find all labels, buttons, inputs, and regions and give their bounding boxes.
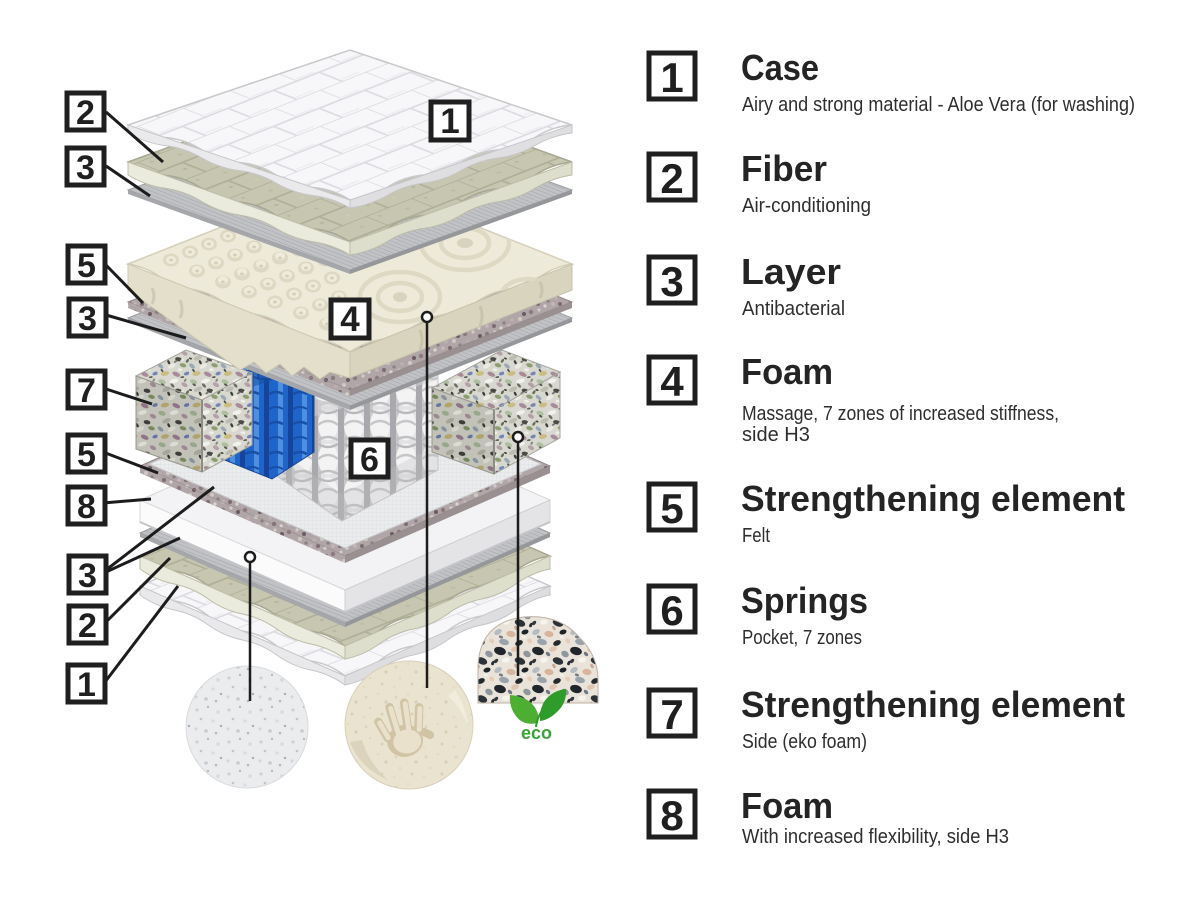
svg-text:1: 1: [77, 666, 96, 704]
svg-text:2: 2: [76, 94, 95, 132]
svg-text:Foam: Foam: [741, 351, 833, 392]
svg-text:Strengthening element: Strengthening element: [741, 684, 1125, 725]
svg-text:Air-conditioning: Air-conditioning: [742, 195, 871, 217]
svg-text:Pocket, 7 zones: Pocket, 7 zones: [742, 627, 862, 649]
svg-text:3: 3: [78, 300, 97, 338]
svg-text:3: 3: [78, 557, 97, 595]
svg-text:Felt: Felt: [742, 525, 770, 547]
svg-text:7: 7: [77, 372, 96, 410]
svg-text:3: 3: [660, 258, 683, 305]
svg-text:6: 6: [360, 441, 379, 479]
svg-text:7: 7: [660, 691, 683, 738]
svg-text:side H3: side H3: [742, 424, 810, 446]
svg-text:Fiber: Fiber: [741, 148, 827, 189]
svg-text:Layer: Layer: [741, 251, 841, 292]
svg-text:5: 5: [660, 485, 683, 532]
svg-text:2: 2: [660, 155, 683, 202]
svg-text:Case: Case: [741, 47, 819, 88]
svg-text:eco: eco: [521, 723, 552, 743]
svg-text:8: 8: [77, 488, 96, 526]
svg-text:With increased flexibility, si: With increased flexibility, side H3: [742, 826, 1009, 848]
svg-text:Antibacterial: Antibacterial: [742, 298, 845, 320]
svg-text:2: 2: [78, 607, 97, 645]
svg-text:1: 1: [440, 102, 459, 141]
svg-text:5: 5: [77, 247, 96, 285]
svg-text:6: 6: [660, 587, 683, 634]
svg-text:4: 4: [340, 300, 360, 339]
svg-text:Side (eko foam): Side (eko foam): [742, 731, 867, 753]
svg-text:Foam: Foam: [741, 785, 833, 826]
svg-text:1: 1: [660, 54, 683, 101]
svg-text:Springs: Springs: [741, 580, 868, 621]
svg-text:3: 3: [76, 149, 95, 187]
svg-text:4: 4: [660, 358, 684, 405]
svg-text:Strengthening element: Strengthening element: [741, 478, 1125, 519]
svg-text:8: 8: [660, 792, 683, 839]
svg-text:Massage, 7 zones of increased: Massage, 7 zones of increased stiffness,: [742, 403, 1059, 425]
svg-text:Airy and strong material - Alo: Airy and strong material - Aloe Vera (fo…: [742, 94, 1135, 116]
svg-text:5: 5: [77, 436, 96, 474]
